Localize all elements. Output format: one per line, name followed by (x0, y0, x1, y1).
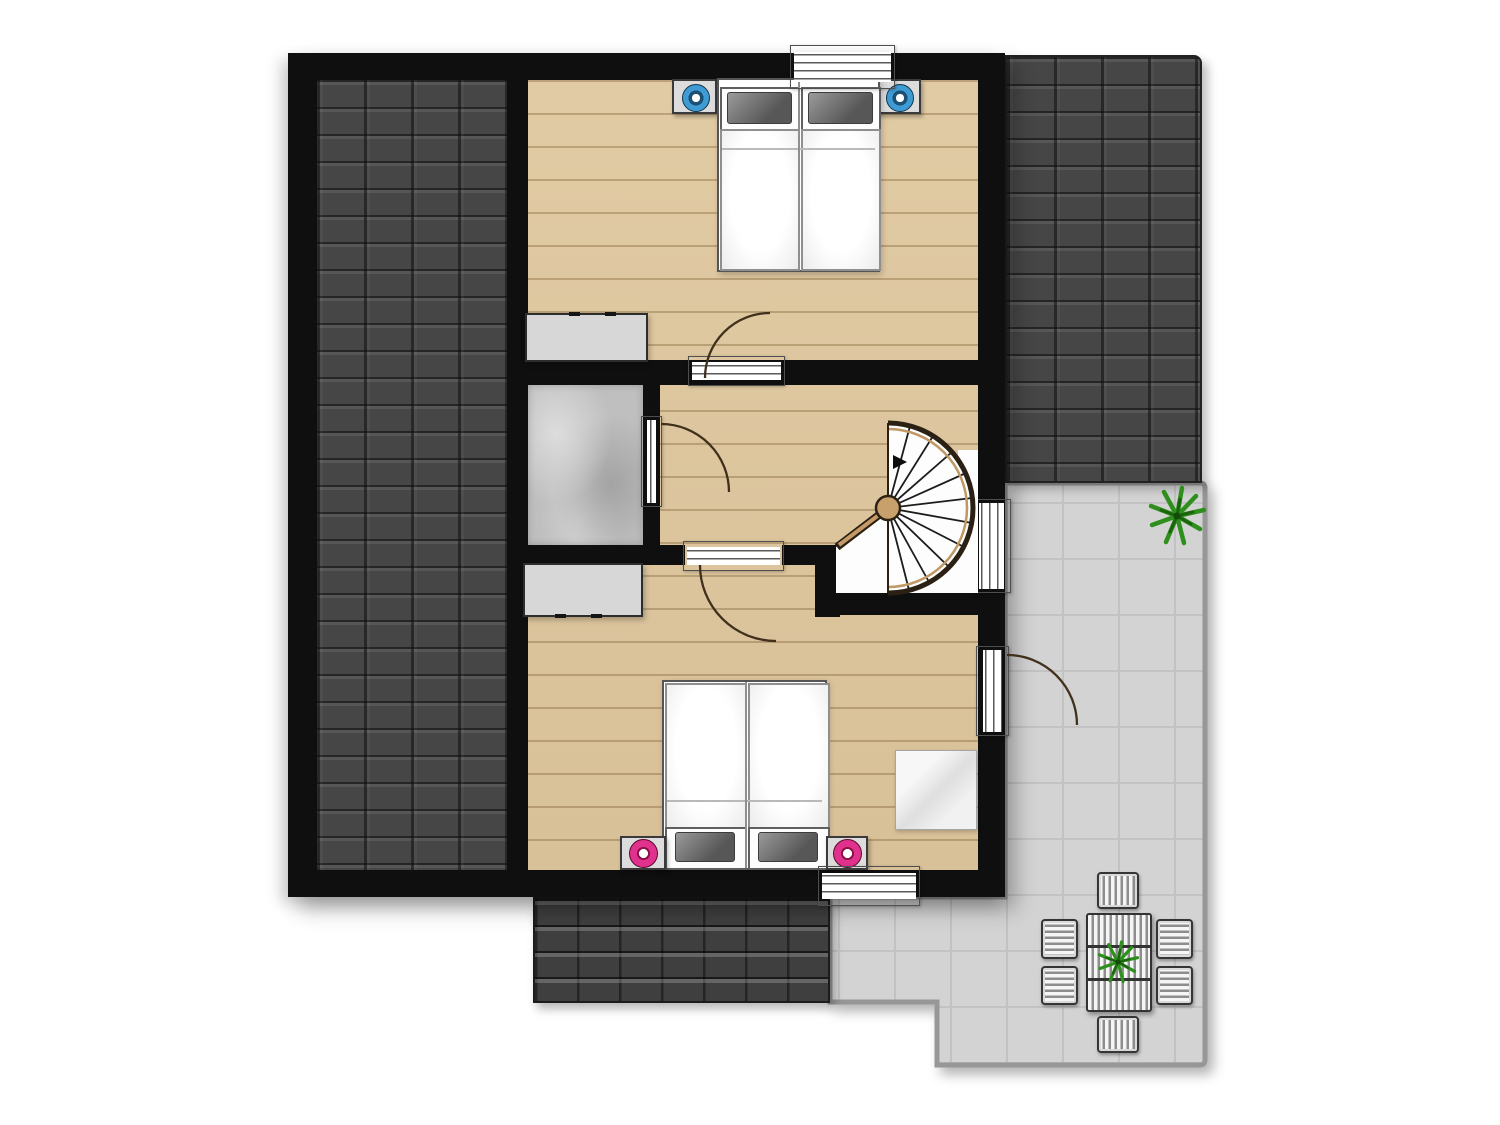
table-bar (1087, 978, 1151, 981)
pillow (675, 832, 735, 862)
pillow (758, 832, 818, 862)
lamp-pink-icon (833, 839, 862, 868)
mattress (665, 683, 747, 829)
roof-north-east (1005, 55, 1202, 483)
door-frame-bedroom-south (683, 541, 784, 571)
dresser-south (523, 563, 643, 617)
wall-bedroom-south-left (507, 545, 685, 565)
nightstand-south-left (620, 836, 666, 870)
pillow-box (665, 827, 747, 870)
chair-top (1097, 872, 1139, 909)
side-table-south (895, 750, 977, 830)
knob (569, 312, 580, 316)
roof-west (317, 80, 507, 870)
pillow-box (801, 87, 881, 131)
wall-stair-bottom (840, 593, 978, 615)
chair-right-1 (1156, 919, 1193, 959)
wall-stair-left (815, 545, 840, 617)
pillow (808, 92, 873, 124)
dresser-north (525, 313, 648, 362)
mattress (748, 683, 830, 829)
floor-plan-canvas (0, 0, 1500, 1125)
window-north (790, 45, 895, 89)
knob (605, 312, 616, 316)
chair-left-2 (1041, 966, 1078, 1005)
bed-divider (798, 80, 800, 270)
chair-right-2 (1156, 966, 1193, 1005)
bathroom-floor (528, 385, 643, 545)
mattress (720, 129, 800, 271)
window-stairs-east (972, 499, 1011, 593)
door-frame-bedroom-north (688, 356, 785, 386)
mattress (801, 129, 881, 271)
lamp-pink-icon (629, 839, 658, 868)
knob (591, 614, 602, 618)
dining-table (1086, 913, 1152, 1012)
window-south (818, 866, 920, 906)
bed-divider (745, 682, 747, 868)
table-bar (1087, 945, 1151, 948)
terrace-door-frame (976, 646, 1009, 736)
double-bed-north (717, 78, 880, 272)
double-bed-south (662, 680, 827, 870)
roof-south (533, 897, 830, 1003)
lamp-blue-icon (682, 84, 710, 112)
knob (555, 614, 566, 618)
chair-left-1 (1041, 919, 1078, 959)
door-frame-bathroom (641, 416, 662, 507)
nightstand-south-right (826, 836, 868, 870)
pillow-box (748, 827, 830, 870)
pillow (727, 92, 792, 124)
pillow-box (720, 87, 800, 131)
nightstand-north-left (672, 79, 717, 114)
chair-bottom (1097, 1016, 1139, 1053)
